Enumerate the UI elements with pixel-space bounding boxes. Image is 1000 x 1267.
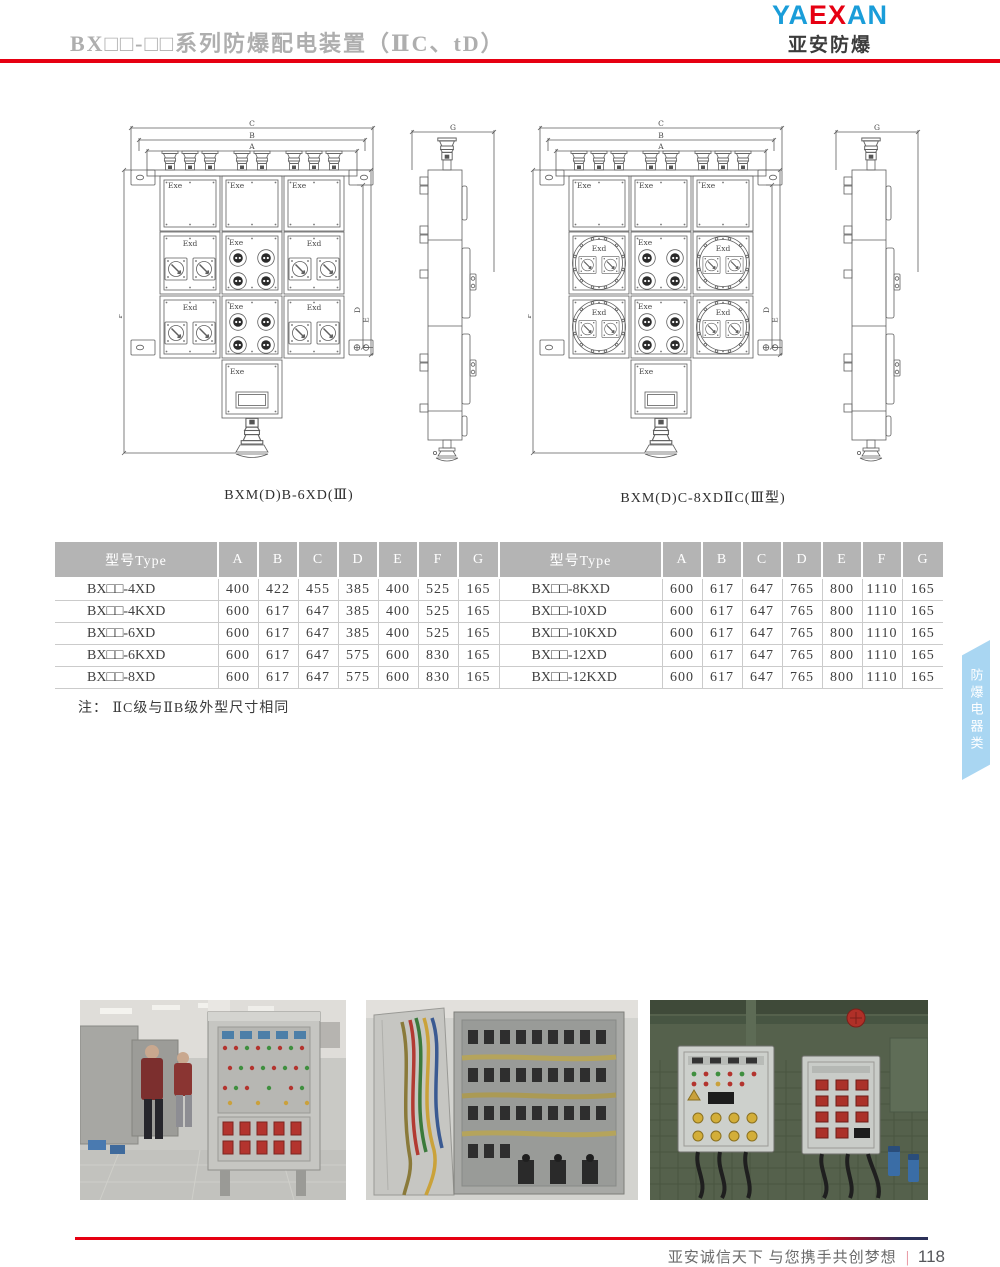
dim-cell: 647 <box>298 667 338 689</box>
model-cell: BX□□-10XD <box>499 601 662 623</box>
dim-cell: 455 <box>298 578 338 601</box>
dim-cell: 165 <box>902 601 943 623</box>
dim-label-a: A <box>248 142 255 151</box>
brand-logo-chinese: 亚安防爆 <box>766 30 894 57</box>
mounting-ear <box>758 170 782 185</box>
dim-label-f: F <box>528 313 533 318</box>
dim-cell: 165 <box>458 601 499 623</box>
col-header-b: B <box>258 542 298 578</box>
dim-cell: 400 <box>378 578 418 601</box>
svg-text:Exe: Exe <box>168 181 183 190</box>
dim-cell: 765 <box>782 667 822 689</box>
dim-cell: 525 <box>418 578 458 601</box>
dim-cell: 165 <box>458 645 499 667</box>
dimension-spec-table: 型号Type A B C D E F G 型号Type A B C D E F … <box>55 542 943 689</box>
dim-cell: 165 <box>458 623 499 645</box>
dim-cell: 600 <box>662 667 702 689</box>
header-rule <box>0 59 1000 63</box>
svg-text:Exd: Exd <box>592 244 607 253</box>
dim-label-f: F <box>119 313 124 318</box>
dim-cell: 617 <box>258 601 298 623</box>
dim-cell: 525 <box>418 623 458 645</box>
model-cell: BX□□-10KXD <box>499 623 662 645</box>
catalog-page: BX□□-□□系列防爆配电装置（ⅡC、tD） YAEXAN 亚安防爆 C B A <box>0 0 1000 1267</box>
dim-cell: 647 <box>298 645 338 667</box>
dim-label-d: D <box>762 307 771 313</box>
dim-cell: 600 <box>662 623 702 645</box>
svg-text:Exd: Exd <box>307 303 322 312</box>
front-view-right-diagram: C B A Exe Exe Exe Exd Exe <box>528 118 794 468</box>
dim-label-e: E <box>771 317 780 322</box>
mounting-rail <box>556 170 766 176</box>
dim-cell: 165 <box>458 667 499 689</box>
dim-line-g <box>834 130 920 272</box>
dim-cell: 617 <box>702 623 742 645</box>
svg-text:Exe: Exe <box>577 181 592 190</box>
col-header-g: G <box>458 542 499 578</box>
dim-cell: 165 <box>458 578 499 601</box>
col-header-a: A <box>662 542 702 578</box>
dim-cell: 647 <box>298 601 338 623</box>
cable-glands-top <box>571 151 751 170</box>
dim-line-g <box>410 130 496 272</box>
enclosure-body <box>428 170 462 440</box>
dim-cell: 165 <box>902 623 943 645</box>
svg-text:Exe: Exe <box>230 367 245 376</box>
dim-cell: 800 <box>822 601 862 623</box>
dim-cell: 400 <box>218 578 258 601</box>
dim-cell: 800 <box>822 578 862 601</box>
model-cell: BX□□-8KXD <box>499 578 662 601</box>
page-number: 118 <box>918 1247 945 1267</box>
dim-cell: 765 <box>782 623 822 645</box>
col-header-model: 型号Type <box>55 542 218 578</box>
model-cell: BX□□-4XD <box>55 578 218 601</box>
svg-text:Exe: Exe <box>701 181 716 190</box>
dim-cell: 1110 <box>862 578 902 601</box>
mounting-ear <box>131 340 155 355</box>
dim-cell: 1110 <box>862 623 902 645</box>
enclosure-body <box>852 170 886 440</box>
dim-cell: 422 <box>258 578 298 601</box>
dim-cell: 400 <box>378 623 418 645</box>
dim-cell: 800 <box>822 645 862 667</box>
category-side-tab: 防爆电器类 <box>962 640 990 780</box>
svg-text:Exe: Exe <box>229 238 244 247</box>
bottom-cable-gland <box>433 440 458 461</box>
dim-cell: 647 <box>742 623 782 645</box>
dim-cell: 600 <box>218 667 258 689</box>
svg-text:Exd: Exd <box>716 308 731 317</box>
dim-cell: 600 <box>662 578 702 601</box>
dim-cell: 617 <box>258 645 298 667</box>
col-header-f: F <box>862 542 902 578</box>
dim-cell: 1110 <box>862 601 902 623</box>
dim-cell: 600 <box>218 601 258 623</box>
footer: 亚安诚信天下 与您携手共创梦想 | 118 <box>400 1246 945 1267</box>
dim-label-g: G <box>874 123 880 132</box>
svg-text:Exe: Exe <box>230 181 245 190</box>
col-header-e: E <box>378 542 418 578</box>
model-cell: BX□□-6XD <box>55 623 218 645</box>
side-cover-bumps <box>886 186 900 436</box>
dim-label-g: G <box>450 123 456 132</box>
dim-label-b: B <box>658 131 664 140</box>
model-cell: BX□□-6KXD <box>55 645 218 667</box>
dim-cell: 617 <box>702 601 742 623</box>
model-cell: BX□□-12XD <box>499 645 662 667</box>
mounting-ear <box>540 170 564 185</box>
dim-cell: 600 <box>662 601 702 623</box>
mounting-ear <box>349 170 373 185</box>
row2-boxes: Exd Exe Exd <box>160 232 344 294</box>
svg-text:Exd: Exd <box>592 308 607 317</box>
dim-cell: 647 <box>742 578 782 601</box>
dim-cell: 617 <box>258 667 298 689</box>
svg-text:Exd: Exd <box>716 244 731 253</box>
dim-cell: 165 <box>902 645 943 667</box>
table-row: BX□□-4XD 400 422 455 385 400 525 165 BX□… <box>55 578 943 601</box>
dim-label-a: A <box>657 142 664 151</box>
dim-cell: 600 <box>218 645 258 667</box>
svg-text:Exe: Exe <box>639 367 654 376</box>
dim-cell: 800 <box>822 623 862 645</box>
dim-cell: 617 <box>258 623 298 645</box>
dim-label-e: E <box>362 317 371 322</box>
dim-cell: 765 <box>782 578 822 601</box>
dim-cell: 830 <box>418 667 458 689</box>
footer-slogan: 亚安诚信天下 与您携手共创梦想 <box>668 1246 897 1267</box>
diagram-caption-left: BXM(D)B-6XD(Ⅲ) <box>174 487 404 504</box>
side-mount-tabs <box>844 177 852 412</box>
model-cell: BX□□-12KXD <box>499 667 662 689</box>
svg-text:Exd: Exd <box>307 239 322 248</box>
dim-cell: 600 <box>378 645 418 667</box>
top-cable-gland <box>438 138 456 160</box>
col-header-c: C <box>742 542 782 578</box>
col-header-f: F <box>418 542 458 578</box>
col-header-c: C <box>298 542 338 578</box>
side-view-right-diagram: G <box>822 122 932 467</box>
side-cover-bumps <box>462 186 476 436</box>
side-view-left-diagram: G <box>398 122 508 467</box>
footer-rule <box>75 1237 928 1240</box>
table-row: BX□□-6XD 600 617 647 385 400 525 165 BX□… <box>55 623 943 645</box>
mounting-ear <box>540 340 564 355</box>
table-header-row: 型号Type A B C D E F G 型号Type A B C D E F … <box>55 542 943 578</box>
bottom-cable-gland <box>857 440 882 461</box>
dim-cell: 575 <box>338 667 378 689</box>
col-header-model: 型号Type <box>499 542 662 578</box>
mounting-rail <box>147 170 357 176</box>
dim-cell: 830 <box>418 645 458 667</box>
diagram-caption-right: BXM(D)C-8XDⅡC(Ⅲ型) <box>588 487 818 507</box>
col-header-b: B <box>702 542 742 578</box>
dim-cell: 385 <box>338 578 378 601</box>
dim-label-c: C <box>658 119 664 128</box>
svg-text:Exd: Exd <box>183 239 198 248</box>
col-header-e: E <box>822 542 862 578</box>
dim-cell: 600 <box>378 667 418 689</box>
front-view-left-diagram: C B A Exe Exe Exe Exd Exe <box>119 118 385 468</box>
bottom-incoming-box: Exe <box>631 360 691 458</box>
dim-cell: 385 <box>338 623 378 645</box>
svg-text:Exe: Exe <box>229 302 244 311</box>
dim-cell: 400 <box>378 601 418 623</box>
mounting-ear <box>131 170 155 185</box>
dim-cell: 165 <box>902 578 943 601</box>
bottom-incoming-box: Exe <box>222 360 282 458</box>
table-row: BX□□-6KXD 600 617 647 575 600 830 165 BX… <box>55 645 943 667</box>
row2-boxes: Exd Exe Exd <box>569 232 753 294</box>
col-header-d: D <box>782 542 822 578</box>
workshop-assembly-photo <box>80 1000 346 1200</box>
cable-glands-top <box>162 151 342 170</box>
dim-cell: 617 <box>702 578 742 601</box>
exe-junction-boxes-row1: Exe Exe Exe <box>160 176 344 231</box>
table-row: BX□□-4KXD 600 617 647 385 400 525 165 BX… <box>55 601 943 623</box>
dim-cell: 385 <box>338 601 378 623</box>
dim-cell: 647 <box>298 623 338 645</box>
dim-cell: 647 <box>742 601 782 623</box>
exe-junction-boxes-row1: Exe Exe Exe <box>569 176 753 231</box>
site-installed-control-boxes-photo <box>650 1000 928 1200</box>
dim-cell: 165 <box>902 667 943 689</box>
model-cell: BX□□-4KXD <box>55 601 218 623</box>
dim-cell: 1110 <box>862 645 902 667</box>
dim-cell: 600 <box>218 623 258 645</box>
side-mount-tabs <box>420 177 428 412</box>
dim-cell: 525 <box>418 601 458 623</box>
page-title: BX□□-□□系列防爆配电装置（ⅡC、tD） <box>70 26 505 58</box>
row3-boxes: Exd Exe Exd <box>160 296 344 358</box>
brand-logo: YAEXAN 亚安防爆 <box>766 2 894 57</box>
svg-text:Exe: Exe <box>292 181 307 190</box>
col-header-d: D <box>338 542 378 578</box>
table-note: 注： ⅡC级与ⅡB级外型尺寸相同 <box>78 697 289 717</box>
dim-cell: 617 <box>702 645 742 667</box>
table-row: BX□□-8XD 600 617 647 575 600 830 165 BX□… <box>55 667 943 689</box>
dim-cell: 765 <box>782 601 822 623</box>
dim-cell: 1110 <box>862 667 902 689</box>
dim-cell: 800 <box>822 667 862 689</box>
dim-cell: 647 <box>742 645 782 667</box>
col-header-g: G <box>902 542 943 578</box>
col-header-a: A <box>218 542 258 578</box>
wired-cabinet-interior-photo <box>366 1000 638 1200</box>
dim-cell: 575 <box>338 645 378 667</box>
dim-label-b: B <box>249 131 255 140</box>
dim-cell: 600 <box>662 645 702 667</box>
svg-text:Exd: Exd <box>183 303 198 312</box>
dim-cell: 617 <box>702 667 742 689</box>
row3-boxes: Exd Exe Exd <box>569 296 753 358</box>
dim-label-c: C <box>249 119 255 128</box>
brand-logo-wordmark: YAEXAN <box>766 2 894 29</box>
model-cell: BX□□-8XD <box>55 667 218 689</box>
top-cable-gland <box>862 138 880 160</box>
svg-text:Exe: Exe <box>638 302 653 311</box>
dim-cell: 647 <box>742 667 782 689</box>
svg-text:Exe: Exe <box>639 181 654 190</box>
svg-text:Exe: Exe <box>638 238 653 247</box>
category-side-tab-label: 防爆电器类 <box>967 668 986 753</box>
dim-cell: 765 <box>782 645 822 667</box>
footer-divider: | <box>906 1249 909 1267</box>
dim-label-d: D <box>353 307 362 313</box>
